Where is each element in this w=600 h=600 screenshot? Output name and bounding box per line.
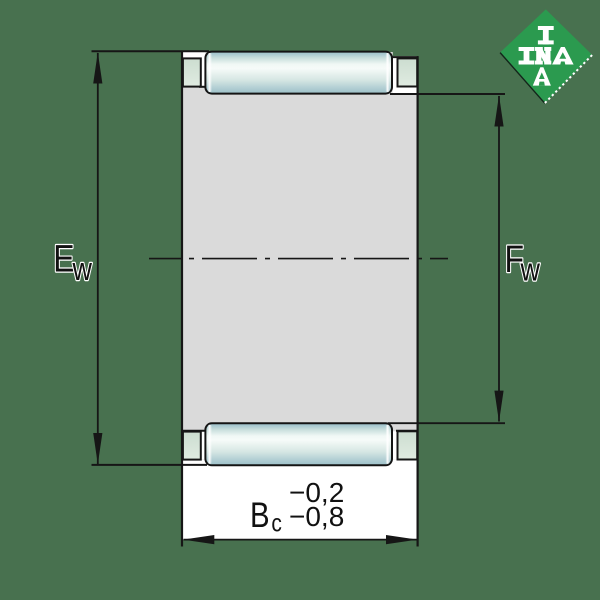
- svg-text:w: w: [72, 252, 93, 288]
- svg-text:−0,8: −0,8: [289, 501, 344, 532]
- svg-text:w: w: [520, 252, 541, 288]
- svg-text:B: B: [250, 496, 270, 535]
- svg-text:c: c: [271, 509, 282, 537]
- svg-text:E: E: [53, 238, 74, 280]
